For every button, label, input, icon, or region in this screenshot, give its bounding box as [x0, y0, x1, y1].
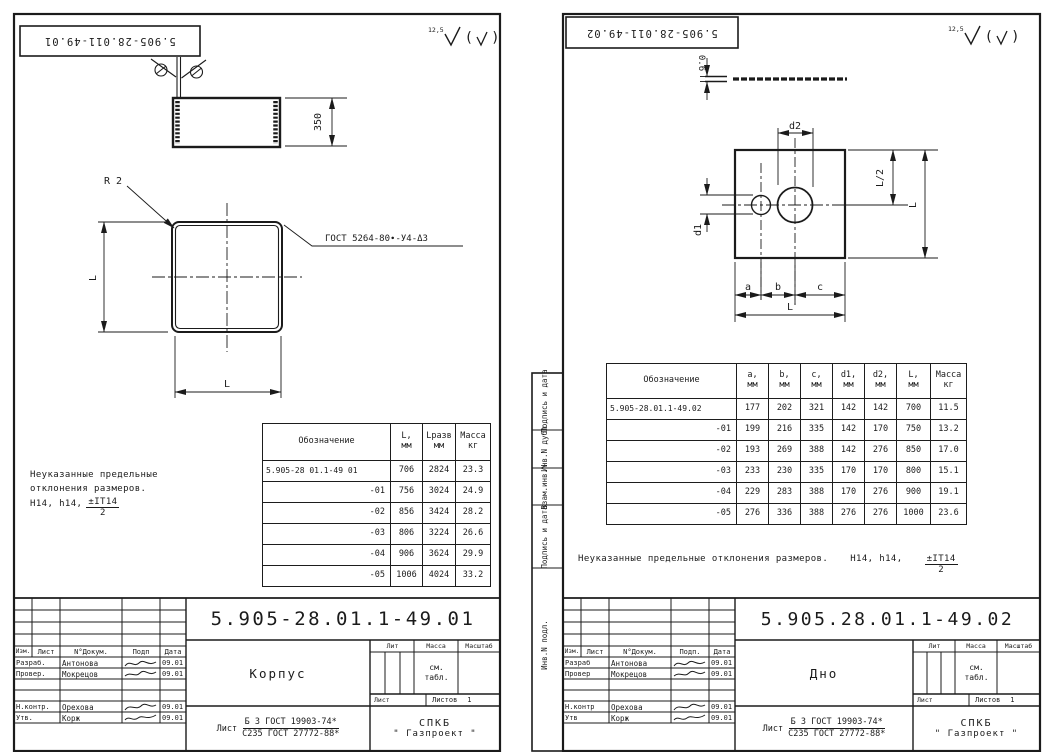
table-cell: 5.905-28 01.1-49 01 — [263, 461, 391, 482]
sheet-label: Лист — [374, 696, 390, 704]
dim-350-label: 350 — [313, 113, 324, 131]
organization: СПКБ " Газпроект " — [914, 707, 1039, 750]
surface-roughness-mark-1: 12,5 ( ) — [428, 25, 500, 47]
dim-a-label: a — [745, 282, 751, 293]
mass-value: см. табл. — [415, 653, 458, 693]
sheet-label: Лист — [917, 696, 933, 704]
table-cell: 276 — [865, 441, 897, 462]
table-cell: 321 — [801, 399, 833, 420]
scale-label: Масштаб — [458, 641, 500, 651]
table-row: -02856342428.2 — [263, 503, 491, 524]
table-cell: 388 — [801, 441, 833, 462]
role-nkontr: Н.контр. — [16, 703, 50, 711]
col-izm: Изм. — [14, 646, 32, 657]
name-razrab: Антонова — [611, 659, 647, 668]
doc-number: 5.905.28.01.1-49.02 — [736, 599, 1039, 639]
signature — [124, 670, 158, 679]
table-row: -04906362429.9 — [263, 545, 491, 566]
table-cell: 269 — [769, 441, 801, 462]
table-cell: 170 — [833, 462, 865, 483]
name-prover: Мокрецов — [62, 670, 98, 679]
parts-table-2: Обозначениеa,ммb,ммc,ммd1,ммd2,ммL,ммМас… — [606, 363, 967, 525]
date-razrab: 09.01 — [711, 659, 732, 667]
name-utv: Корж — [62, 714, 80, 723]
margin-label-1: Подпись и дата — [540, 369, 549, 432]
table-cell: 23.3 — [456, 461, 491, 482]
column-header: L,мм — [897, 364, 931, 399]
note-text: Неуказанные предельные отклонения размер… — [578, 554, 828, 564]
table-row: -05276336388276276100023.6 — [607, 504, 967, 525]
tolerance-note-2: Неуказанные предельные отклонения размер… — [578, 554, 958, 575]
table-cell: -05 — [263, 566, 391, 587]
col-dokum: N°Докум. — [60, 646, 122, 657]
weld-note-label: ГОСТ 5264-80∙-У4-Δ3 — [325, 234, 428, 244]
margin-label-4: Подпись и дата — [540, 505, 549, 568]
sheet2-edge-view — [705, 77, 847, 82]
table-cell: 142 — [833, 399, 865, 420]
table-cell: 900 — [897, 483, 931, 504]
date-prover: 09.01 — [162, 670, 183, 678]
table-cell: 170 — [865, 420, 897, 441]
table-cell: 15.1 — [931, 462, 967, 483]
paren-open: ( — [465, 31, 473, 45]
roughness-check-small-icon — [995, 28, 1009, 46]
table-cell: 388 — [801, 504, 833, 525]
role-razrab: Разраб — [565, 659, 590, 667]
roughness-check-icon — [443, 25, 463, 47]
table-cell: -03 — [607, 462, 737, 483]
table-cell: 11.5 — [931, 399, 967, 420]
table-cell: 233 — [737, 462, 769, 483]
dimension-d2 — [778, 128, 813, 187]
name-utv: Корж — [611, 714, 629, 723]
table-cell: 388 — [801, 483, 833, 504]
date-nkontr: 09.01 — [711, 703, 732, 711]
parts-table-1: ОбозначениеL,ммLразвммМассакг5.905-28 01… — [262, 423, 491, 587]
table-cell: 335 — [801, 462, 833, 483]
date-nkontr: 09.01 — [162, 703, 183, 711]
table-cell: 17.0 — [931, 441, 967, 462]
table-cell: 756 — [391, 482, 423, 503]
tolerance-note-1: Неуказанные предельные отклонения размер… — [30, 468, 158, 518]
table-cell: 142 — [833, 441, 865, 462]
paren-open: ( — [985, 30, 993, 44]
table-cell: 142 — [833, 420, 865, 441]
dimension-abcL — [735, 262, 845, 322]
table-cell: 170 — [833, 483, 865, 504]
mass-label: Масса — [414, 641, 458, 651]
col-podp: Подп. — [671, 646, 709, 657]
table-cell: 3424 — [423, 503, 456, 524]
material-prefix: Лист — [217, 724, 237, 734]
table-row: -051006402433.2 — [263, 566, 491, 587]
table-cell: 336 — [769, 504, 801, 525]
name-razrab: Антонова — [62, 659, 98, 668]
material-spec: Лист Б 3 ГОСТ 19903-74* С235 ГОСТ 27772-… — [736, 707, 912, 750]
table-cell: 5.905-28.01.1-49.02 — [607, 399, 737, 420]
table-cell: 700 — [897, 399, 931, 420]
date-prover: 09.01 — [711, 670, 732, 678]
col-list: Лист — [581, 646, 609, 657]
lit-label: Лит — [914, 641, 955, 651]
dim-L-right-label: L — [908, 202, 919, 208]
table-cell: 906 — [391, 545, 423, 566]
material-fraction: Б 3 ГОСТ 19903-74* С235 ГОСТ 27772-88* — [242, 717, 339, 740]
column-header: Обозначение — [607, 364, 737, 399]
note-line3: Н14, h14, — [30, 497, 82, 511]
table-cell: -05 — [607, 504, 737, 525]
col-list: Лист — [32, 646, 60, 657]
sheet2-main-view — [722, 138, 858, 305]
sheet2-stamp: 5.905-28.011-49.02 — [566, 17, 738, 48]
column-header: Lразвмм — [423, 424, 456, 461]
col-podp: Подп — [122, 646, 160, 657]
material-spec: Лист Б 3 ГОСТ 19903-74* С235 ГОСТ 27772-… — [187, 707, 369, 750]
paren-close: ) — [491, 31, 499, 45]
role-nkontr: Н.контр — [565, 703, 595, 711]
table-cell: 335 — [801, 420, 833, 441]
role-prover: Провер — [565, 670, 590, 678]
table-cell: 216 — [769, 420, 801, 441]
part-name: Дно — [736, 641, 912, 705]
roughness-value: 12,5 — [948, 25, 964, 33]
table-cell: 24.9 — [456, 482, 491, 503]
table-cell: 33.2 — [456, 566, 491, 587]
table-cell: 23.6 — [931, 504, 967, 525]
scanned-drawing-page: R 2 350 ГОСТ 5264-80∙-У4-Δ3 L L 0.6 d2 L… — [0, 0, 1049, 752]
table-row: -0323323033517017080015.1 — [607, 462, 967, 483]
role-utv: Утв — [565, 714, 578, 722]
table-cell: 193 — [737, 441, 769, 462]
signature — [124, 713, 158, 723]
signature — [673, 659, 707, 668]
table-cell: -01 — [607, 420, 737, 441]
material-prefix: Лист — [763, 724, 783, 734]
table-cell: 276 — [865, 483, 897, 504]
table-cell: 283 — [769, 483, 801, 504]
signature — [673, 702, 707, 712]
roughness-value: 12,5 — [428, 26, 444, 34]
table-cell: -02 — [263, 503, 391, 524]
table-cell: 856 — [391, 503, 423, 524]
date-utv: 09.01 — [162, 714, 183, 722]
table-cell: 850 — [897, 441, 931, 462]
roughness-check-small-icon — [475, 29, 489, 47]
table-cell: -04 — [607, 483, 737, 504]
sheet1-stamp: 5.905-28.011-49.01 — [20, 26, 200, 56]
weld-symbol-icon — [151, 57, 206, 98]
name-prover: Мокрецов — [611, 670, 647, 679]
column-header: Массакг — [456, 424, 491, 461]
lit-label: Лит — [371, 641, 414, 651]
table-cell: 800 — [897, 462, 931, 483]
table-cell: 177 — [737, 399, 769, 420]
paren-close: ) — [1011, 30, 1019, 44]
dim-c-label: c — [817, 282, 823, 293]
table-cell: -04 — [263, 545, 391, 566]
col-izm: Изм. — [563, 646, 581, 657]
table-cell: 806 — [391, 524, 423, 545]
table-cell: 1006 — [391, 566, 423, 587]
table-row: -0219326938814227685017.0 — [607, 441, 967, 462]
column-header: c,мм — [801, 364, 833, 399]
margin-label-5: Инв.N подл. — [540, 620, 549, 670]
table-cell: 4024 — [423, 566, 456, 587]
doc-number: 5.905-28.01.1-49.01 — [187, 599, 499, 639]
table-cell: -03 — [263, 524, 391, 545]
table-row: 5.905-28 01.1-49 01706282423.3 — [263, 461, 491, 482]
column-header: d1,мм — [833, 364, 865, 399]
table-cell: 750 — [897, 420, 931, 441]
role-utv: Утв. — [16, 714, 33, 722]
col-data: Дата — [160, 646, 186, 657]
table-cell: 13.2 — [931, 420, 967, 441]
surface-roughness-mark-2: 12,5 ( ) — [948, 24, 1020, 46]
margin-label-3: Взам.инв.N — [540, 464, 549, 509]
column-header: d2,мм — [865, 364, 897, 399]
radius-label: R 2 — [104, 176, 122, 187]
dim-L-half-label: L/2 — [875, 169, 886, 187]
signature — [124, 659, 158, 668]
table-cell: -02 — [607, 441, 737, 462]
note-line2: отклонения размеров. — [30, 482, 158, 496]
dim-thickness-label: 0.6 — [696, 55, 706, 71]
dim-b-label: b — [775, 282, 781, 293]
name-nkontr: Орехова — [62, 703, 94, 712]
table-cell: 229 — [737, 483, 769, 504]
table-row: -0422928338817027690019.1 — [607, 483, 967, 504]
table-cell: 28.2 — [456, 503, 491, 524]
material-fraction: Б 3 ГОСТ 19903-74* С235 ГОСТ 27772-88* — [788, 717, 885, 740]
signature — [673, 713, 707, 723]
table-cell: 276 — [865, 504, 897, 525]
dim-L-bottom2-label: L — [787, 302, 793, 313]
column-header: L,мм — [391, 424, 423, 461]
table-cell: -01 — [263, 482, 391, 503]
table-cell: 142 — [865, 399, 897, 420]
column-header: a,мм — [737, 364, 769, 399]
table-row: 5.905-28.01.1-49.0217720232114214270011.… — [607, 399, 967, 420]
table-cell: 276 — [737, 504, 769, 525]
table-row: -0119921633514217075013.2 — [607, 420, 967, 441]
dim-L-bottom-label: L — [224, 379, 230, 390]
roughness-check-icon — [963, 24, 983, 46]
table-cell: 1000 — [897, 504, 931, 525]
column-header: b,мм — [769, 364, 801, 399]
note-tol: Н14, h14, — [850, 554, 902, 564]
sheet1-main-view — [152, 203, 302, 352]
table-row: -01756302424.9 — [263, 482, 491, 503]
col-data: Дата — [709, 646, 735, 657]
organization: СПКБ " Газпроект " — [371, 707, 499, 750]
note-line1: Неуказанные предельные — [30, 468, 158, 482]
table-cell: 3224 — [423, 524, 456, 545]
col-dokum: N°Докум. — [609, 646, 671, 657]
table-cell: 170 — [865, 462, 897, 483]
table-row: -03806322426.6 — [263, 524, 491, 545]
table-cell: 26.6 — [456, 524, 491, 545]
date-utv: 09.01 — [711, 714, 732, 722]
date-razrab: 09.01 — [162, 659, 183, 667]
table-cell: 202 — [769, 399, 801, 420]
scale-label: Масштаб — [997, 641, 1040, 651]
column-header: Обозначение — [263, 424, 391, 461]
sheets-count: Листов 1 — [975, 696, 1015, 704]
tolerance-fraction: ±IT14 2 — [86, 497, 119, 518]
column-header: Массакг — [931, 364, 967, 399]
table-cell: 3024 — [423, 482, 456, 503]
table-cell: 19.1 — [931, 483, 967, 504]
signature — [673, 670, 707, 679]
table-cell: 3624 — [423, 545, 456, 566]
sheets-count: Листов 1 — [432, 696, 472, 704]
table-cell: 276 — [833, 504, 865, 525]
dimension-L-half — [845, 150, 938, 205]
mass-value: см. табл. — [956, 653, 997, 693]
sheet1-side-view — [173, 98, 280, 147]
role-razrab: Разраб. — [16, 659, 46, 667]
dim-d2-label: d2 — [789, 121, 801, 132]
mass-label: Масса — [955, 641, 997, 651]
table-cell: 230 — [769, 462, 801, 483]
sheet1-stamp-text: 5.905-28.011-49.01 — [44, 35, 176, 47]
table-cell: 199 — [737, 420, 769, 441]
table-cell: 706 — [391, 461, 423, 482]
dim-d1-label: d1 — [693, 224, 704, 236]
role-prover: Провер. — [16, 670, 46, 678]
table-cell: 2824 — [423, 461, 456, 482]
tolerance-fraction: ±IT14 2 — [925, 554, 958, 575]
signature — [124, 702, 158, 712]
name-nkontr: Орехова — [611, 703, 643, 712]
dim-L-left-label: L — [88, 275, 99, 281]
table-cell: 29.9 — [456, 545, 491, 566]
sheet2-stamp-text: 5.905-28.011-49.02 — [586, 27, 718, 39]
part-name: Корпус — [187, 641, 369, 705]
